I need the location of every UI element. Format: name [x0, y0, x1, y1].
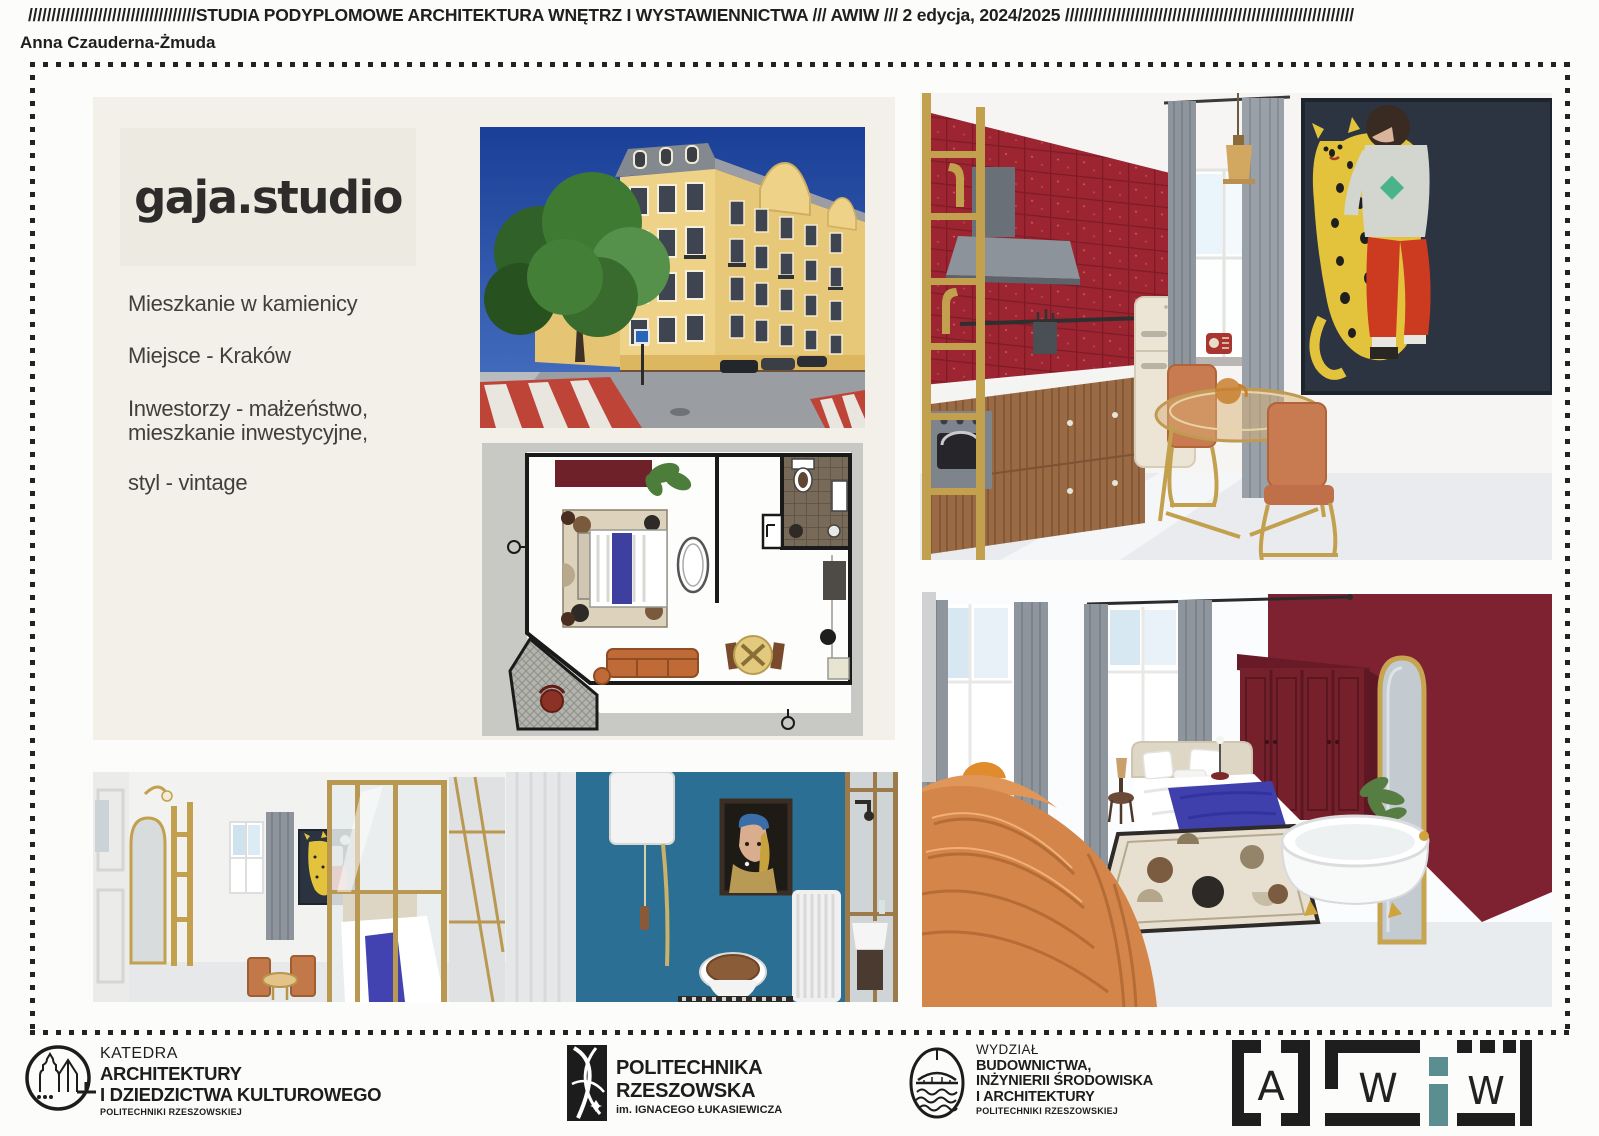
- description-line: mieszkanie inwestycyjne,: [128, 420, 368, 446]
- kitchen-render: [920, 93, 1552, 560]
- description-line: styl - vintage: [128, 470, 247, 496]
- presentation-board: { "header": { "strip": "////////////////…: [0, 0, 1599, 1136]
- plan-wardrobe: [555, 460, 652, 487]
- plan-closet: [763, 515, 782, 548]
- wydzial-subline: POLITECHNIKI RZESZOWSKIEJ: [976, 1107, 1153, 1116]
- hallway-bathroom-render: [93, 772, 898, 1002]
- glass-partition-2: [449, 777, 505, 1002]
- svg-text:W: W: [1467, 1069, 1505, 1113]
- katedra-text: KATEDRA ARCHITEKTURY I DZIEDZICTWA KULTU…: [100, 1046, 381, 1117]
- politechnika-logo-icon: [566, 1044, 608, 1127]
- wydzial-text: WYDZIAŁ BUDOWNICTWA, INŻYNIERII ŚRODOWIS…: [976, 1043, 1153, 1116]
- plan-bathroom: [782, 457, 850, 548]
- awiw-teal-i: [1429, 1057, 1448, 1126]
- awiw-logo: A W W: [1232, 1040, 1532, 1131]
- katedra-subline: POLITECHNIKI RZESZOWSKIEJ: [100, 1108, 381, 1117]
- vermeer-painting: [722, 801, 790, 893]
- leopard-painting: [1303, 100, 1552, 393]
- svg-text:W: W: [1358, 1066, 1398, 1112]
- retro-radio: [1206, 333, 1232, 354]
- description-line: Miejsce - Kraków: [128, 343, 291, 369]
- katedra-line: ARCHITEKTURY: [100, 1065, 381, 1084]
- description-line: Mieszkanie w kamienicy: [128, 291, 357, 317]
- arch-mirror: [131, 818, 165, 963]
- politechnika-line: RZESZOWSKA: [616, 1081, 782, 1101]
- politechnika-subline: im. IGNACEGO ŁUKASIEWICZA: [616, 1105, 782, 1116]
- building-photo: [480, 127, 865, 428]
- katedra-logo-icon: [24, 1040, 100, 1123]
- wydzial-line: INŻYNIERII ŚRODOWISKA: [976, 1074, 1153, 1089]
- katedra-line: KATEDRA: [100, 1046, 381, 1062]
- politechnika-line: POLITECHNIKA: [616, 1058, 782, 1078]
- plan-bed: [561, 510, 667, 627]
- studio-name: gaja.studio: [134, 171, 402, 224]
- title-strip: ////////////////////////////////////STUD…: [28, 5, 1599, 31]
- author-name: Anna Czauderna-Żmuda: [20, 33, 216, 53]
- column-radiator: [792, 890, 841, 1002]
- bedroom-render: [922, 592, 1552, 1007]
- wydzial-line: I ARCHITEKTURY: [976, 1090, 1153, 1105]
- glass-partition: [327, 780, 447, 1002]
- gaja-studio-logo: gaja.studio: [120, 128, 416, 266]
- shower-enclosure: [845, 772, 898, 1002]
- floor-plan-drawing: [482, 443, 863, 736]
- description-line: Inwestorzy - małżeństwo,: [128, 396, 368, 422]
- white-panel-door: [93, 772, 129, 1002]
- politechnika-text: POLITECHNIKA RZESZOWSKA im. IGNACEGO ŁUK…: [616, 1058, 782, 1116]
- svg-text:A: A: [1257, 1064, 1285, 1110]
- katedra-line: I DZIEDZICTWA KULTUROWEGO: [100, 1086, 381, 1105]
- wydzial-logo-icon: [908, 1044, 966, 1127]
- hall-window: [230, 822, 263, 893]
- wydzial-line: BUDOWNICTWA,: [976, 1059, 1153, 1074]
- wydzial-line: WYDZIAŁ: [976, 1043, 1153, 1057]
